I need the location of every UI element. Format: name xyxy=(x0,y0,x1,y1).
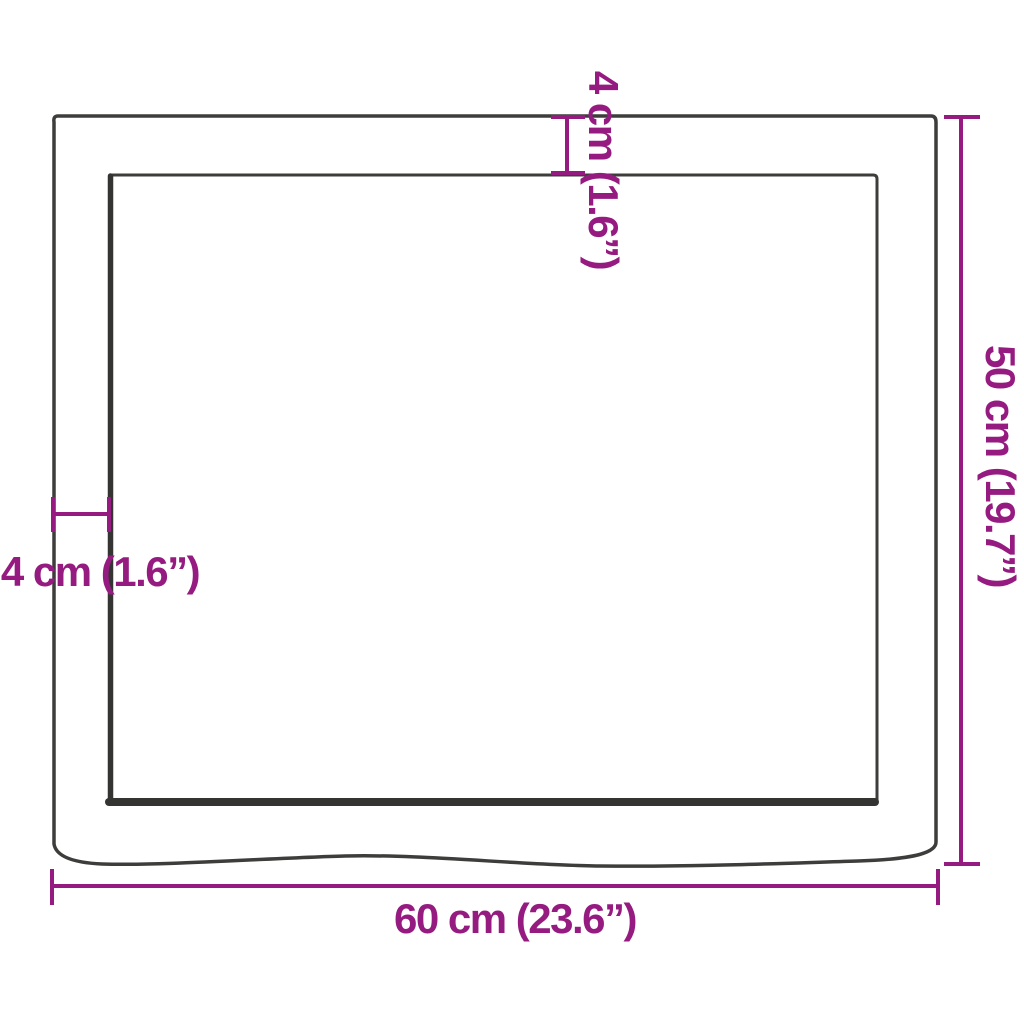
height-label: 50 cm (19.7”) xyxy=(979,345,1021,587)
height-dimension-line xyxy=(944,117,980,864)
product-dimension-diagram: 4 cm (1.6”) 4 cm (1.6”) 50 cm (19.7”) 60… xyxy=(0,0,1024,1024)
top-thickness-label: 4 cm (1.6”) xyxy=(582,71,624,269)
diagram-drawing xyxy=(0,0,1024,1024)
board-inner-outline xyxy=(110,175,877,800)
left-thickness-dimension-line xyxy=(53,497,109,532)
board-outer-outline xyxy=(54,116,936,866)
width-label: 60 cm (23.6”) xyxy=(394,898,636,940)
left-thickness-label: 4 cm (1.6”) xyxy=(1,551,199,593)
